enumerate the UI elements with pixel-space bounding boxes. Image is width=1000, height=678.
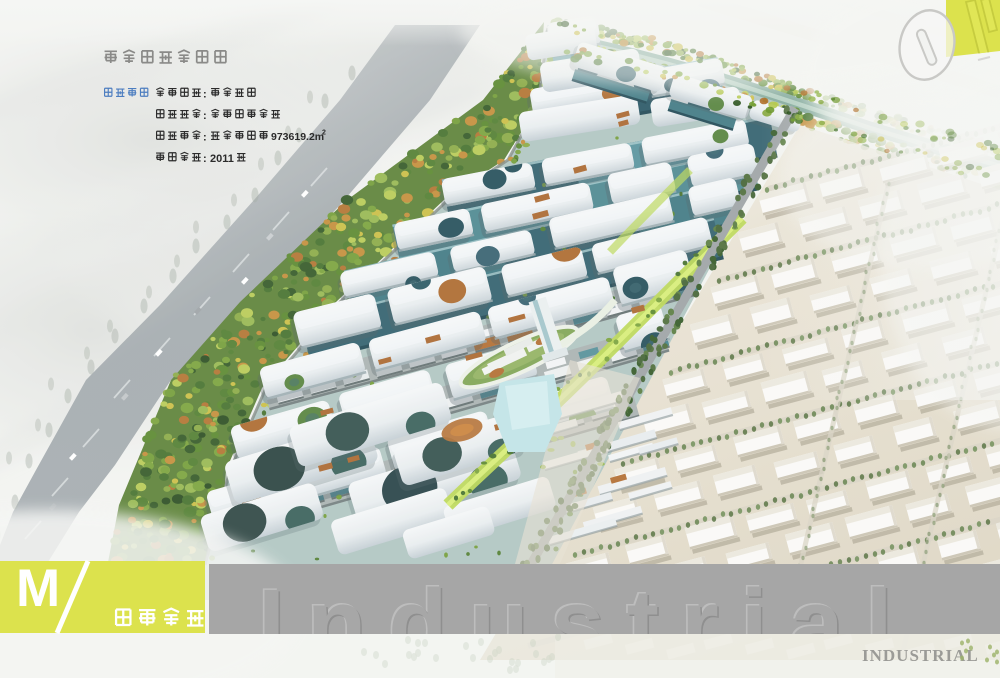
svg-text:2011: 2011 xyxy=(210,153,234,165)
svg-text::: : xyxy=(203,153,207,165)
svg-text:M: M xyxy=(16,559,60,618)
svg-text::: : xyxy=(203,110,207,122)
svg-text::: : xyxy=(203,132,207,144)
svg-text::: : xyxy=(203,89,207,101)
svg-text:2: 2 xyxy=(322,130,326,137)
svg-text:INDUSTRIAL: INDUSTRIAL xyxy=(862,646,979,665)
svg-text:973619.2m: 973619.2m xyxy=(271,131,324,143)
